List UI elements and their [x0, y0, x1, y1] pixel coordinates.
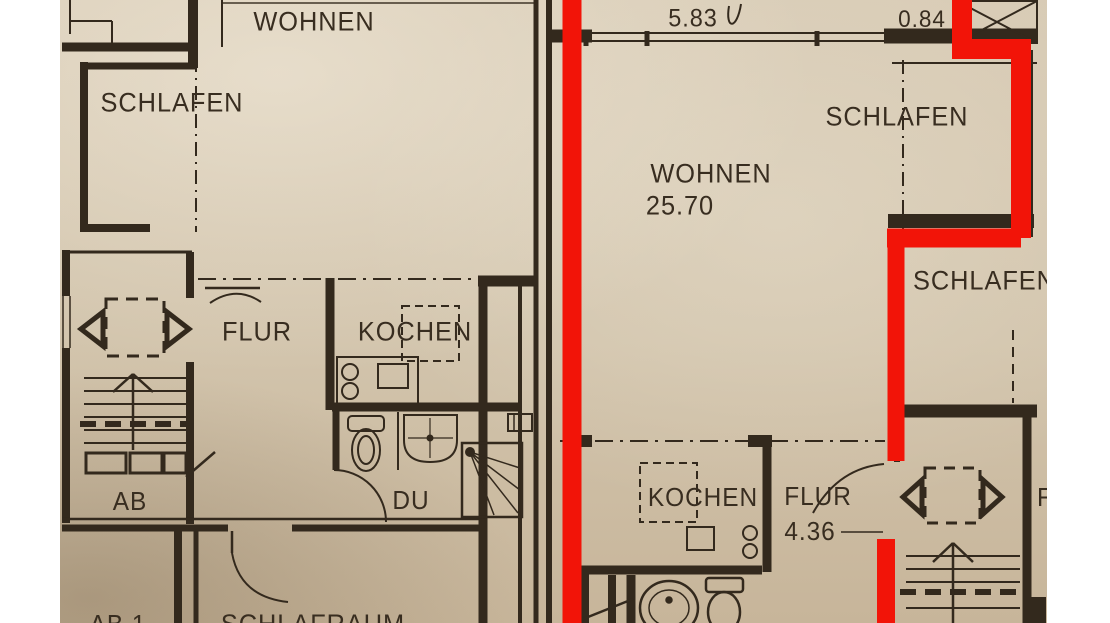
area-label-2570: 25.70: [646, 193, 714, 220]
room-label-flur-left: FLUR: [222, 319, 292, 346]
stove-burner-icon: [743, 526, 757, 540]
room-label-ab1: AB 1: [90, 611, 147, 623]
elevator-icon-left: [81, 299, 189, 356]
room-label-schlafraum: SCHLAFRAUM: [221, 611, 405, 623]
toilet-icon: [708, 592, 740, 623]
dim-squiggle-583: [728, 4, 741, 24]
kitchen-sink-icon: [378, 364, 408, 388]
room-label-schlafen-left: SCHLAFEN: [101, 90, 244, 117]
room-label-du: DU: [392, 487, 429, 513]
stove-burner-icon: [743, 544, 757, 558]
room-label-flur-mid: FLUR: [784, 483, 852, 509]
room-label-wohnen-left: WOHNEN: [253, 9, 374, 36]
room-label-kochen-left: KOCHEN: [358, 319, 472, 346]
room-label-schlafen-mid: SCHLAFEN: [826, 104, 969, 131]
floorplan-photo: WOHNEN SCHLAFEN FLUR KOCHEN AB DU AB 1 S…: [0, 0, 1110, 623]
toilet-tank-icon: [706, 578, 743, 592]
room-label-schlafen-right-clipped: SCHLAFEN: [913, 268, 1056, 295]
dimension-label-084: 0.84: [898, 8, 946, 32]
room-label-kochen-mid: KOCHEN: [648, 484, 758, 510]
stairs-icon-right: [900, 543, 1024, 623]
dimension-label-583: 5.83: [668, 7, 718, 32]
area-label-436: 4.36: [784, 518, 835, 544]
bathroom-left: [334, 412, 532, 522]
door-arc: [334, 470, 386, 522]
dimension-marks: [728, 4, 883, 532]
stove-burner-icon: [342, 364, 358, 380]
photo-margin-left: [0, 0, 60, 623]
room-label-wohnen-mid: WOHNEN: [650, 161, 771, 188]
elevator-icon-right: [903, 468, 1002, 523]
schlafraum-door-arc: [232, 531, 288, 602]
room-label-ab: AB: [113, 488, 147, 514]
left-entry-door-arc: [205, 288, 261, 303]
stairs-icon-left: [80, 374, 215, 477]
bathroom-right: [578, 578, 743, 623]
photo-margin-right: [1047, 0, 1110, 623]
kitchen-sink-icon: [687, 527, 714, 550]
stove-burner-icon: [342, 383, 358, 399]
